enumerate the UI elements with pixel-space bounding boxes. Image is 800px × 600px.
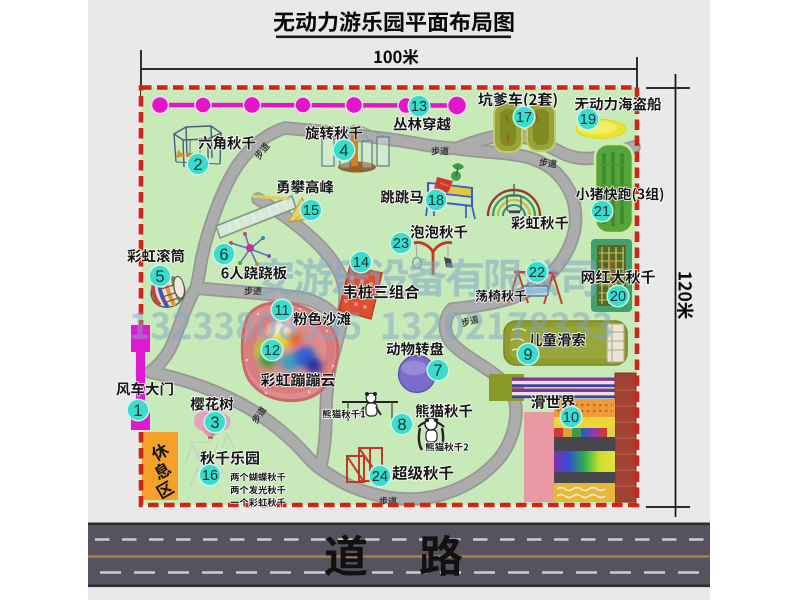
svg-text:10: 10 [563,410,579,426]
svg-text:12: 12 [264,343,280,359]
svg-text:7: 7 [433,362,442,380]
svg-text:9: 9 [523,346,532,364]
svg-text:22: 22 [529,265,545,281]
svg-text:23: 23 [393,236,409,252]
svg-text:18: 18 [428,193,444,209]
svg-text:4: 4 [339,142,348,160]
svg-text:11: 11 [274,303,289,319]
svg-text:16: 16 [202,468,218,484]
svg-text:8: 8 [397,416,406,434]
svg-text:5: 5 [155,268,164,286]
svg-text:20: 20 [610,289,626,305]
svg-text:15: 15 [303,203,319,219]
svg-text:19: 19 [580,112,596,128]
svg-text:21: 21 [594,204,610,220]
svg-text:2: 2 [193,156,202,174]
svg-text:13: 13 [411,99,427,115]
svg-text:1: 1 [133,402,142,420]
svg-text:14: 14 [353,255,369,271]
svg-text:17: 17 [516,110,532,126]
svg-text:6: 6 [219,246,228,264]
svg-text:3: 3 [210,414,219,432]
svg-text:24: 24 [372,469,388,485]
